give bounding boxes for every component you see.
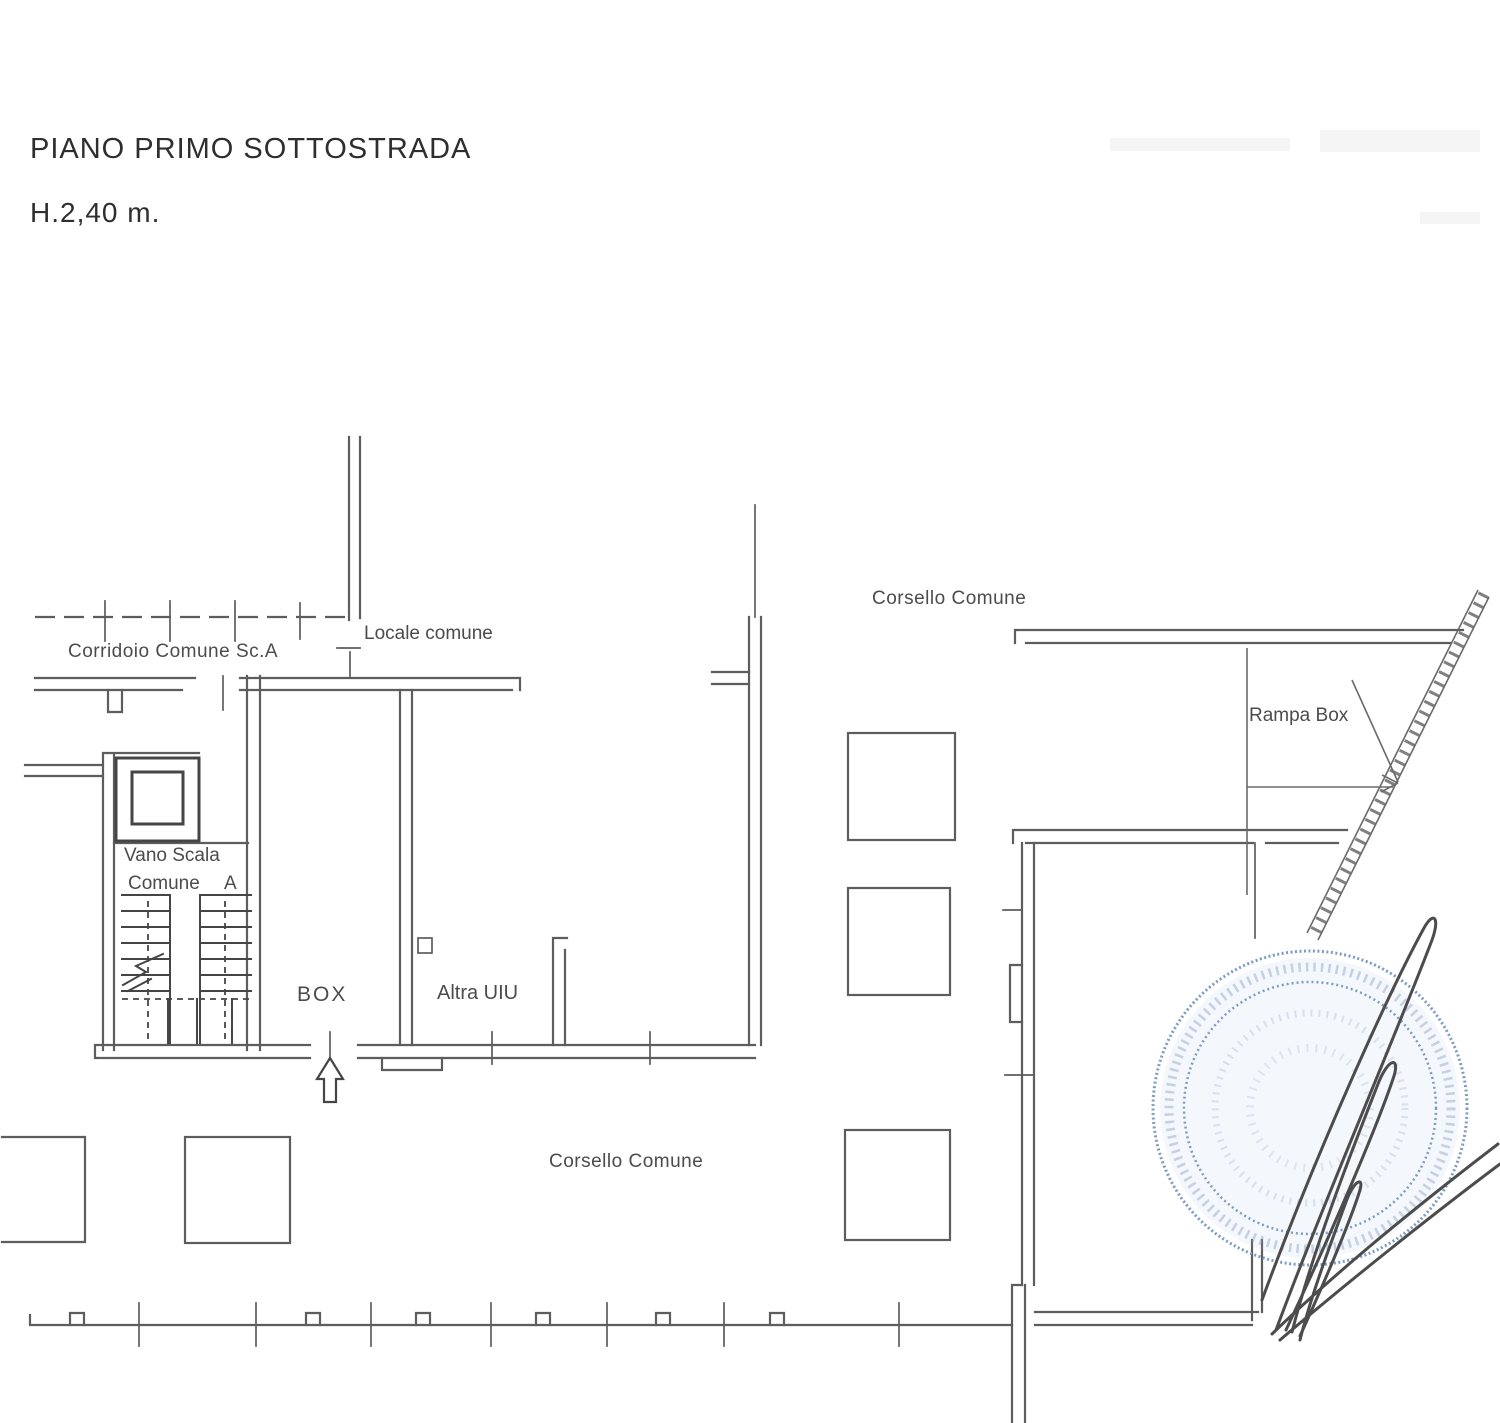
floorplan-drawing: Corridoio Comune Sc.A Locale comune Cors…: [0, 0, 1500, 1423]
central-wall: [712, 505, 761, 1045]
label-corsello-comune-top: Corsello Comune: [872, 588, 1026, 609]
pillar: [185, 1137, 290, 1243]
round-stamp: [1153, 951, 1467, 1265]
pillar: [2, 1137, 85, 1242]
pillar: [848, 733, 955, 840]
corridor-walls: [35, 676, 520, 712]
ramp-hatching: [1312, 594, 1484, 938]
pillar: [848, 888, 950, 995]
label-vano-scala: Vano Scala: [124, 845, 220, 866]
door-marker: [418, 938, 432, 953]
pillar: [845, 1130, 950, 1240]
bottom-boundary-wall: [30, 1303, 1012, 1346]
elevator-shaft: [116, 758, 199, 841]
label-scala-letter: A: [224, 873, 237, 894]
label-altra-uiu: Altra UIU: [437, 982, 518, 1004]
label-box: BOX: [297, 983, 347, 1006]
entrance-arrow: [317, 1058, 343, 1102]
corridor-section-line: [35, 601, 345, 641]
label-vano-scala-comune: Comune: [128, 873, 200, 894]
label-corridoio-comune: Corridoio Comune Sc.A: [68, 641, 278, 662]
label-corsello-comune-bottom: Corsello Comune: [549, 1151, 703, 1172]
locale-comune-walls: [337, 437, 360, 676]
floorplan-page: PIANO PRIMO SOTTOSTRADA H.2,40 m.: [0, 0, 1500, 1423]
label-locale-comune: Locale comune: [364, 623, 493, 644]
staircase: [122, 895, 251, 1045]
scan-smudges: [1110, 130, 1480, 224]
ramp-arrow: [1247, 648, 1398, 895]
label-rampa-box: Rampa Box: [1249, 705, 1349, 726]
